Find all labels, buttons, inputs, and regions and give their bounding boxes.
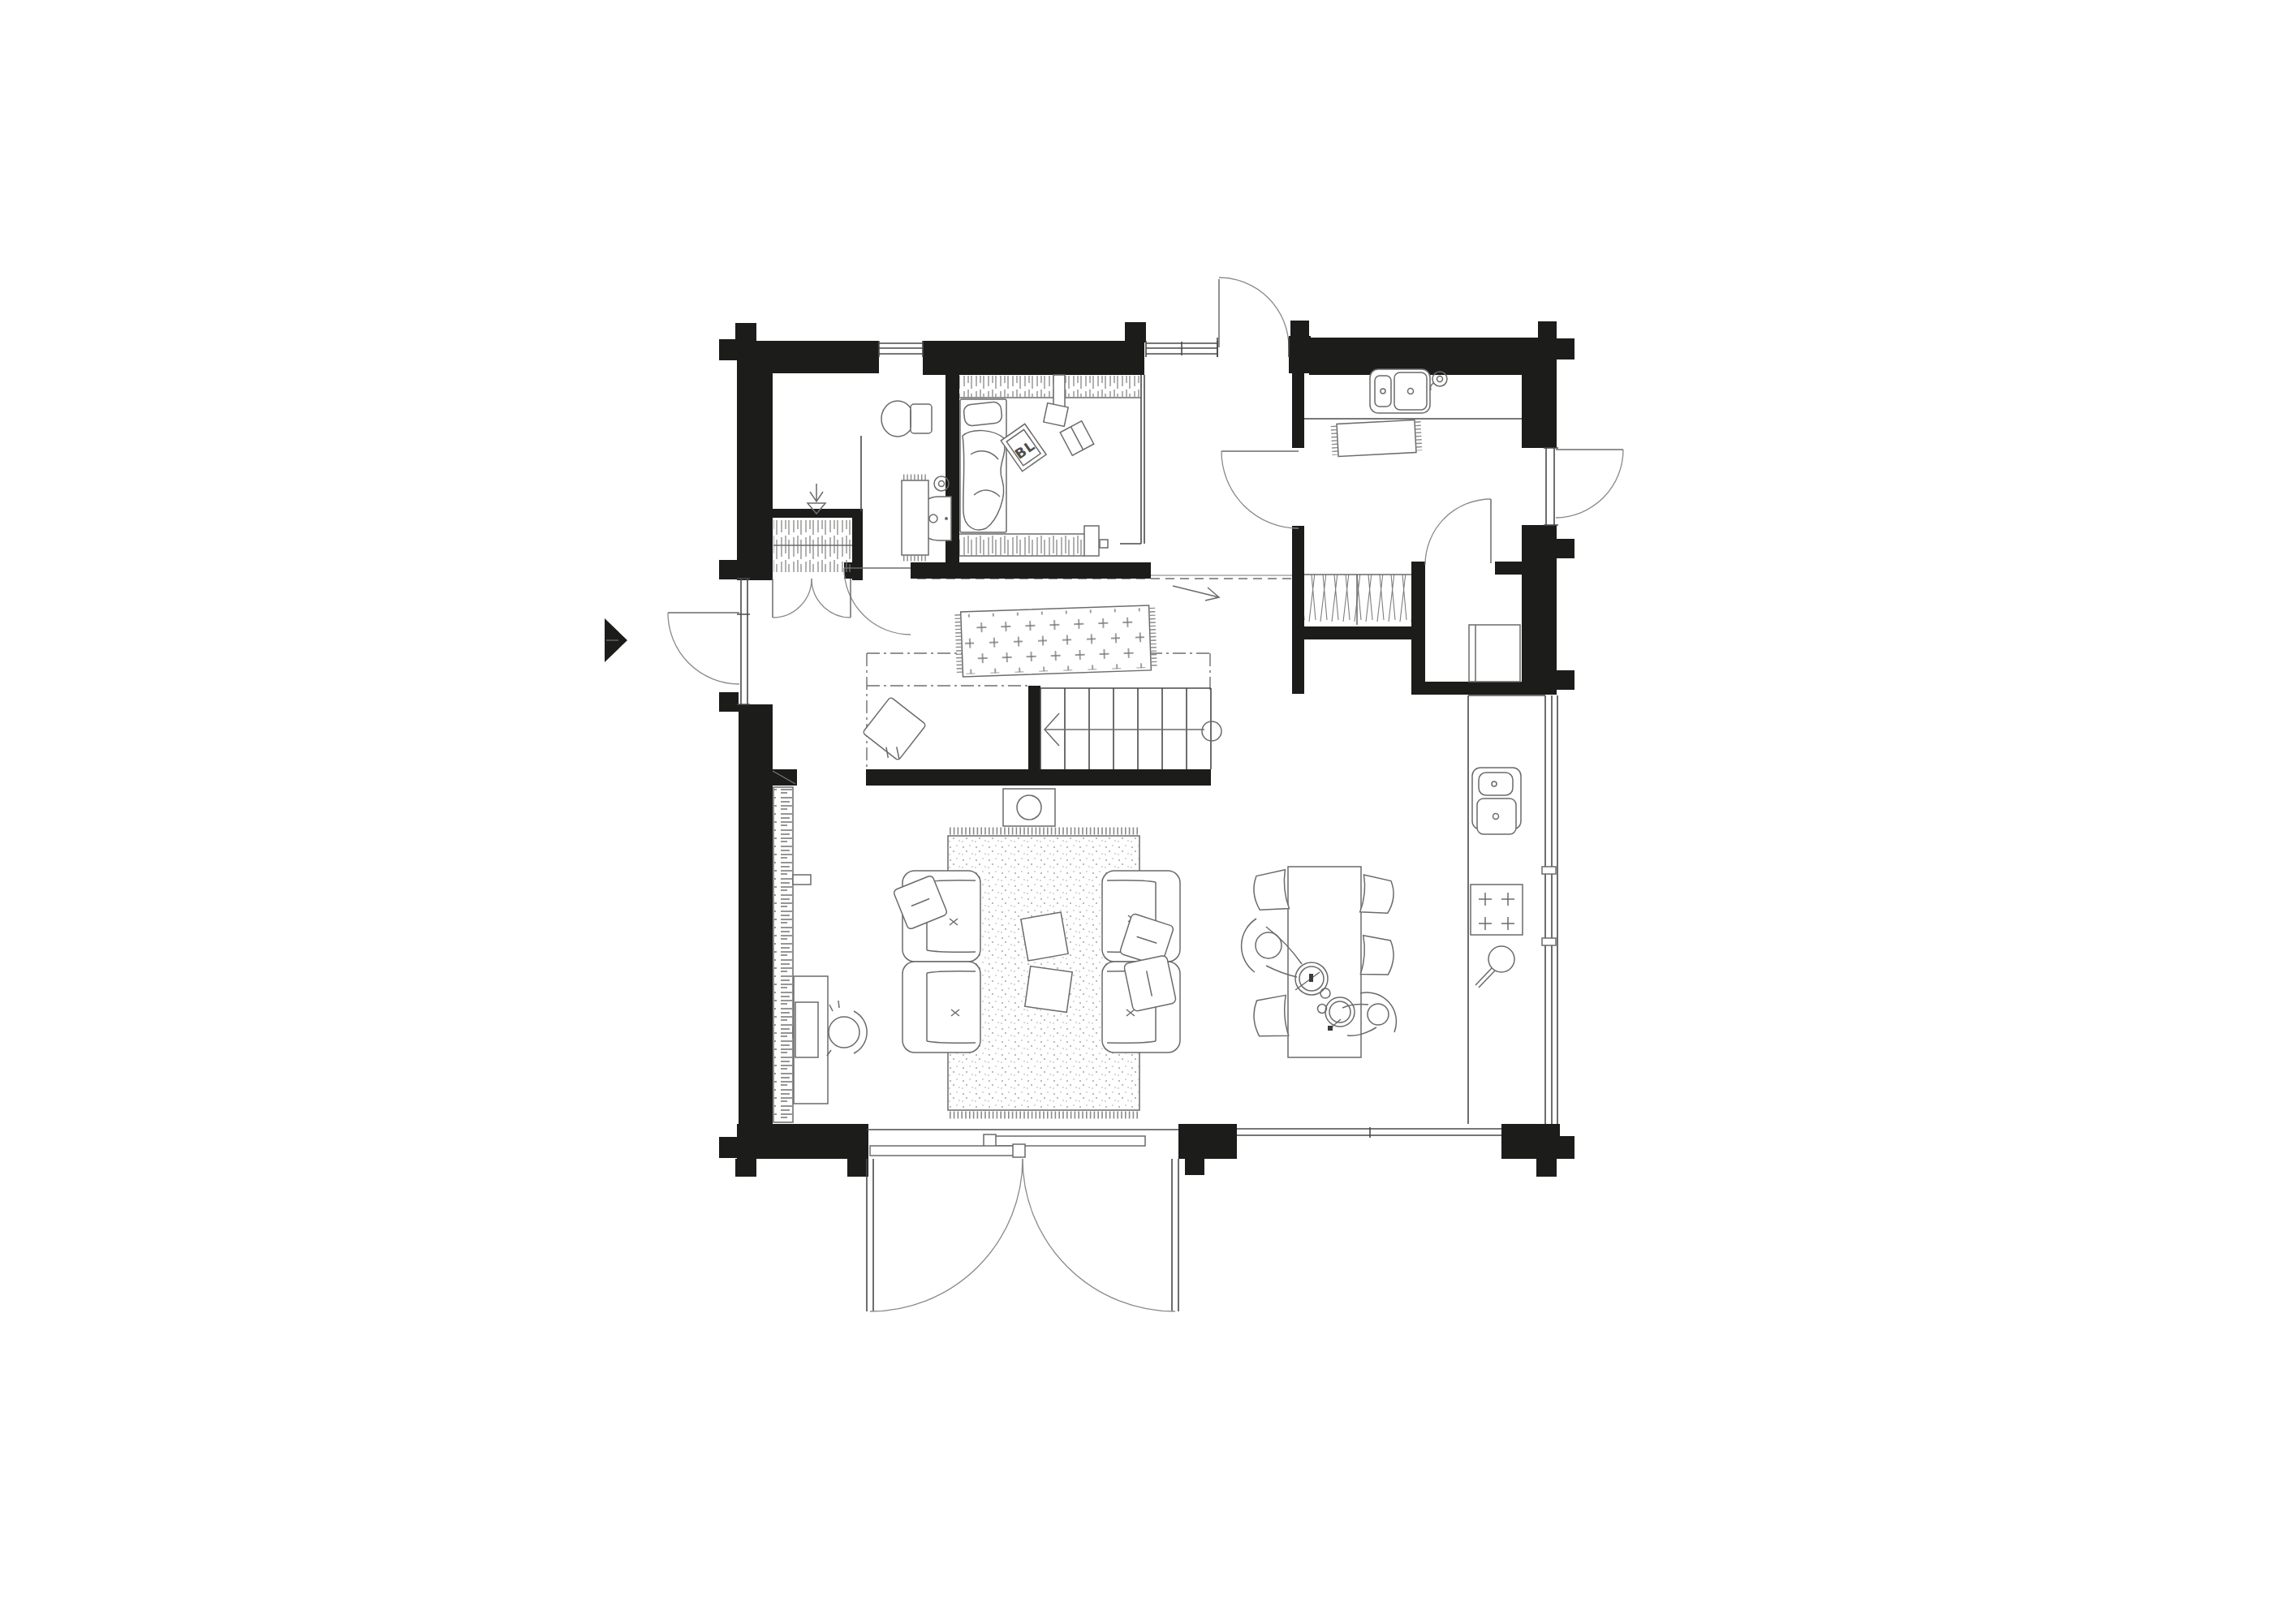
window-corridor-top: [1146, 341, 1217, 357]
wood-stove: [1003, 789, 1055, 826]
hall-closet-doors: [773, 579, 851, 618]
staircase: [1040, 688, 1221, 769]
hall-rug: [958, 605, 1155, 677]
bathroom-rug: [902, 477, 928, 558]
floor-plan-drawing: BL: [0, 0, 2296, 1623]
entry-door: [668, 579, 750, 704]
window-top-left: [879, 341, 923, 357]
toilet: [881, 401, 932, 437]
small-room-door: [1425, 499, 1491, 565]
sliding-glass-doors-bottom: [867, 1130, 1178, 1157]
slope-direction-arrow: [1173, 586, 1219, 601]
magazine: BL: [1001, 403, 1094, 471]
stair-direction-arrow: [1045, 713, 1221, 746]
bedroom: BL: [959, 375, 1144, 556]
utility-wardrobe: [1304, 575, 1411, 625]
floor-cushion: [860, 697, 927, 764]
side-door-right: [1544, 448, 1623, 525]
bed: [960, 399, 1006, 532]
utility-room-door: [1221, 451, 1299, 528]
kitchen-counter-right: [1468, 695, 1545, 1124]
utility-sink: [1370, 369, 1430, 413]
small-room-fixture: [1469, 625, 1520, 682]
utility-rug: [1333, 420, 1419, 456]
hall-closet: [773, 520, 852, 572]
desk: [794, 976, 828, 1104]
window-bottom-right: [1237, 1127, 1501, 1138]
back-door-top: [1217, 278, 1289, 357]
sofa-right: [1102, 871, 1180, 1053]
entry-direction-arrow-icon: [605, 618, 627, 662]
desk-chair-person: [827, 1001, 867, 1056]
dining-table: [1288, 867, 1361, 1057]
bedroom-partition-wall: [1120, 375, 1144, 544]
frying-pan-icon: [1475, 946, 1514, 988]
sofa-left: [893, 871, 980, 1053]
terrace-french-doors: [867, 1159, 1178, 1311]
window-wall-right: [1542, 695, 1557, 1124]
cooktop: [1471, 885, 1523, 935]
kitchen-sink: [1472, 768, 1521, 834]
floor-plan-page: BL: [0, 0, 2296, 1623]
